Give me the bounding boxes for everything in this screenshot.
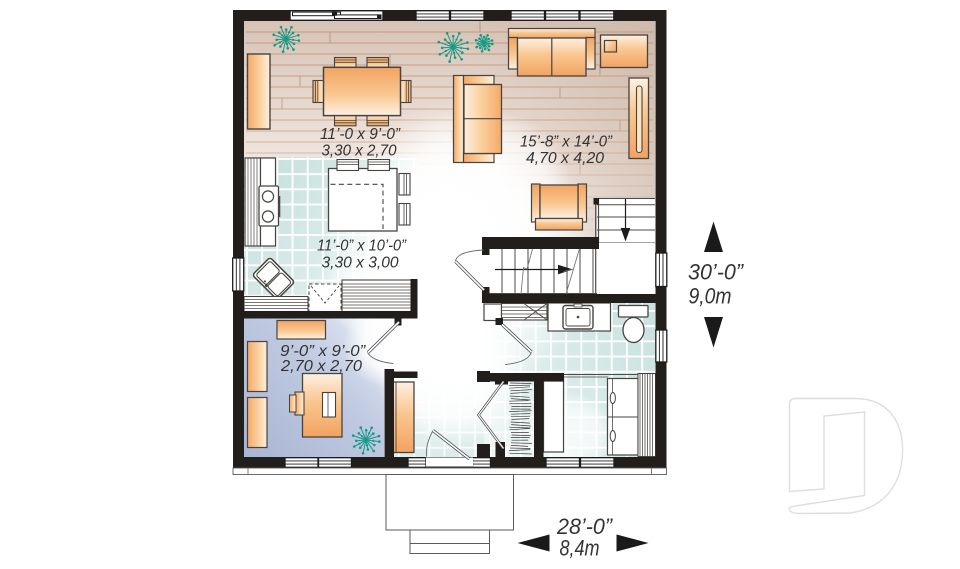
svg-text:15’-8” x 14’-0”: 15’-8” x 14’-0” xyxy=(520,134,613,151)
svg-text:9,0m: 9,0m xyxy=(689,284,732,309)
svg-text:30’-0”: 30’-0” xyxy=(688,260,745,285)
svg-text:11’-0” x 10’-0”: 11’-0” x 10’-0” xyxy=(317,238,407,255)
svg-text:11’-0 x 9’-0”: 11’-0 x 9’-0” xyxy=(320,126,401,143)
svg-text:2,70 x 2,70: 2,70 x 2,70 xyxy=(280,358,362,375)
svg-text:4,70 x 4,20: 4,70 x 4,20 xyxy=(526,150,604,167)
svg-text:8,4m: 8,4m xyxy=(560,536,600,561)
svg-text:3,30 x 3,00: 3,30 x 3,00 xyxy=(322,255,399,272)
svg-text:3,30 x 2,70: 3,30 x 2,70 xyxy=(322,143,397,160)
